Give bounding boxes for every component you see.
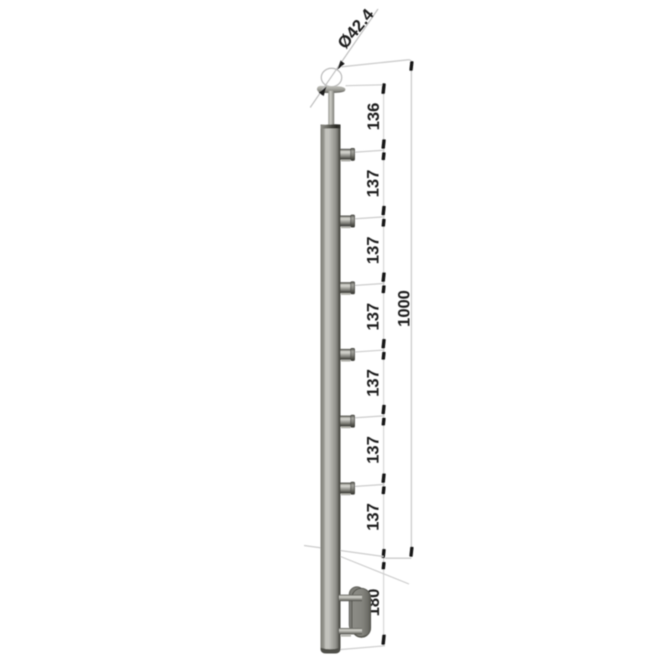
svg-text:137: 137 — [364, 503, 382, 531]
svg-text:Ø42.4: Ø42.4 — [334, 5, 378, 53]
svg-text:137: 137 — [364, 303, 382, 331]
svg-text:137: 137 — [364, 237, 382, 265]
svg-text:136: 136 — [365, 103, 383, 131]
svg-text:1000: 1000 — [395, 290, 413, 327]
svg-text:137: 137 — [364, 436, 382, 464]
svg-text:137: 137 — [364, 369, 382, 397]
svg-text:137: 137 — [364, 170, 382, 198]
